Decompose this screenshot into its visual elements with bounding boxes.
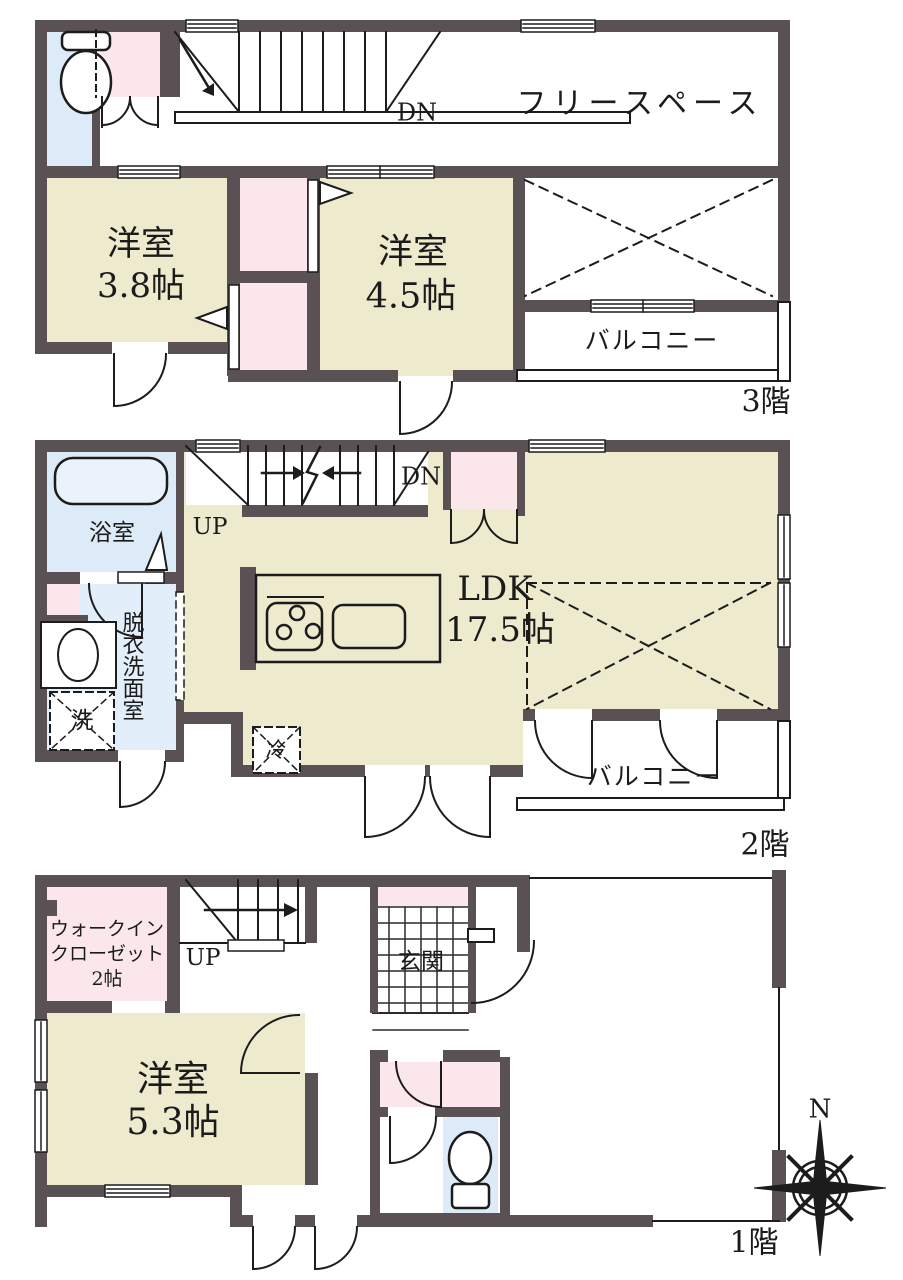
label-balcony-2f: バルコニー — [587, 764, 722, 790]
label-ldk-name: LDK — [457, 572, 532, 608]
label-ldk-size: 17.5帖 — [445, 613, 555, 649]
yard-boundary — [530, 870, 786, 1222]
label-balcony-3f: バルコニー — [585, 328, 720, 354]
vanity-sink-icon — [41, 622, 116, 688]
closet-3f-lower — [240, 283, 307, 376]
label-bedroom53-name: 洋室 — [137, 1061, 209, 1099]
label-up-2f: UP — [193, 515, 228, 539]
label-wic-line1: ウォークイン — [50, 920, 164, 940]
label-washer: 洗 — [71, 709, 94, 733]
closet-3f-upper — [240, 178, 307, 271]
closet-2f-top — [451, 446, 517, 510]
label-free-space: フリースペース — [517, 88, 764, 120]
label-bath: 浴室 — [89, 521, 135, 545]
label-dn-3f: DN — [397, 100, 437, 125]
label-washroom: 脱衣洗面室 — [119, 611, 142, 721]
label-up-1f: UP — [186, 946, 221, 970]
label-compass-north: N — [809, 1096, 832, 1123]
label-bedroom45-size: 4.5帖 — [366, 279, 457, 316]
label-floor-1: 1階 — [729, 1227, 778, 1259]
label-bedroom53-size: 5.3帖 — [126, 1104, 219, 1142]
label-bedroom45-name: 洋室 — [378, 235, 448, 272]
toilet-icon-3f — [61, 32, 111, 113]
bath-door-track — [118, 572, 164, 583]
balcony-rail-bottom-3f — [517, 370, 784, 381]
label-floor-3: 3階 — [741, 386, 790, 418]
bathtub-icon — [55, 458, 167, 504]
balcony-rail-right-2f — [778, 721, 790, 798]
label-bedroom38-size: 3.8帖 — [97, 269, 185, 305]
double-door-3f — [102, 97, 158, 127]
floor-plan-page: フリースペース 洋室 3.8帖 洋室 4.5帖 バルコニー DN 3階 浴室 脱… — [0, 0, 903, 1280]
balcony-rail-bottom-2f — [517, 798, 784, 810]
label-wic-line3: 2帖 — [91, 970, 122, 990]
label-fridge: 冷 — [266, 739, 287, 761]
balcony-rail-right-3f — [778, 302, 790, 381]
label-floor-2: 2階 — [740, 829, 789, 861]
stair-landing-1f — [228, 940, 284, 951]
void-x-3f — [525, 180, 772, 296]
label-bedroom38-name: 洋室 — [107, 227, 175, 263]
label-entrance: 玄関 — [398, 950, 444, 974]
label-dn-2f: DN — [401, 464, 441, 489]
toilet-icon-1f — [449, 1132, 491, 1208]
stairs-up-arrow-1f — [284, 903, 298, 917]
sliding-door-washroom — [176, 592, 184, 700]
label-wic-line2: クローゼット — [50, 945, 164, 965]
